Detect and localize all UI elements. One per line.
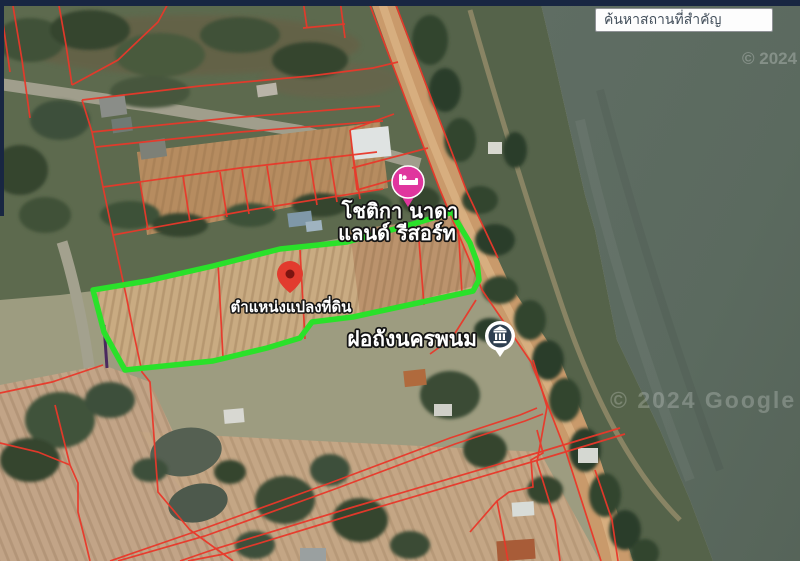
google-watermark: © 2024 Google [610, 387, 796, 413]
search-input[interactable] [595, 8, 773, 32]
water-tower-label[interactable]: ฝอถังนครพนม [347, 327, 477, 351]
map-viewport[interactable]: © 2024 Google © 2024 [0, 0, 800, 561]
resort-label-line2[interactable]: แลนด์ รีสอร์ท [338, 221, 456, 245]
top-bar [0, 0, 800, 6]
left-edge-bar [0, 6, 4, 216]
plot-location-label: ตำแหน่งแปลงที่ดิน [231, 296, 353, 316]
maps-app-window: © 2024 Google © 2024 [0, 0, 800, 561]
copyright-watermark: © 2024 [742, 49, 798, 68]
resort-label-line1[interactable]: โชติกา นาดา [341, 199, 459, 223]
pin-dot [286, 270, 295, 279]
map-canvas[interactable]: © 2024 Google © 2024 [0, 0, 800, 561]
